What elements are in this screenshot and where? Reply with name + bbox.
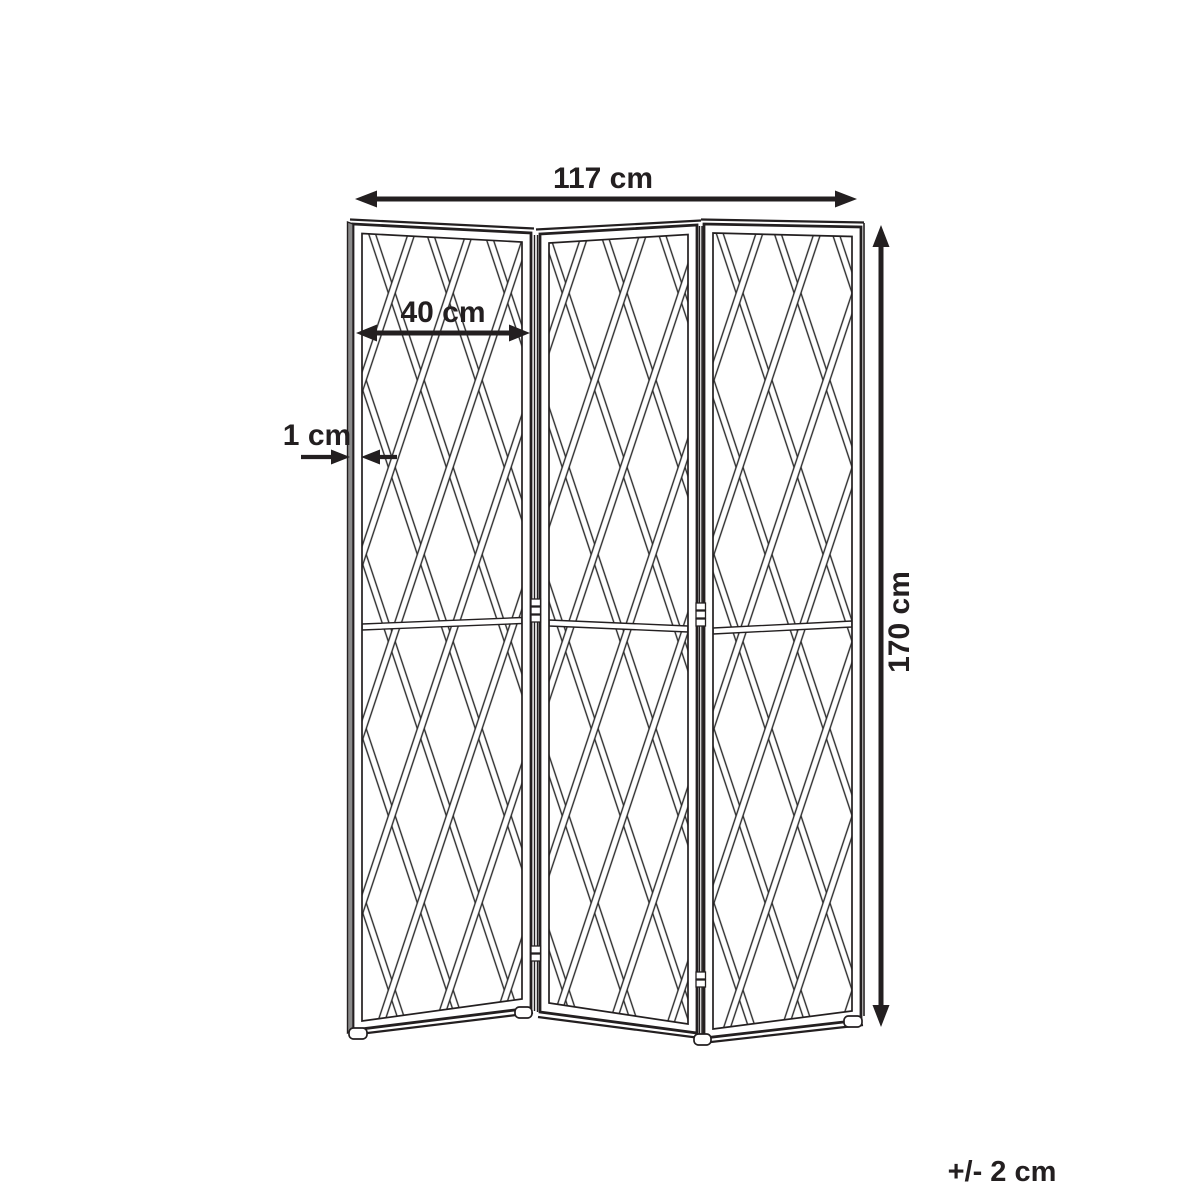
dimension-total-width: 117 cm: [355, 162, 857, 208]
dimension-diagram-page: 117 cm 40 cm 1 cm 170 cm +/- 2 cm: [0, 0, 1200, 1200]
room-divider-diagram: 117 cm 40 cm 1 cm 170 cm +/- 2 cm: [0, 0, 1200, 1200]
arrowhead-down-icon: [873, 1005, 890, 1027]
panel-width-label: 40 cm: [400, 296, 485, 329]
tolerance-label: +/- 2 cm: [948, 1156, 1057, 1188]
arrowhead-up-icon: [873, 225, 890, 247]
dimension-height: 170 cm: [873, 225, 917, 1027]
arrowhead-left-icon: [355, 191, 377, 208]
total-width-label: 117 cm: [553, 162, 653, 195]
thickness-label: 1 cm: [283, 419, 351, 452]
arrowhead-right-icon: [835, 191, 857, 208]
panel-left-edge-profile: [348, 222, 354, 1033]
height-label: 170 cm: [883, 571, 916, 673]
